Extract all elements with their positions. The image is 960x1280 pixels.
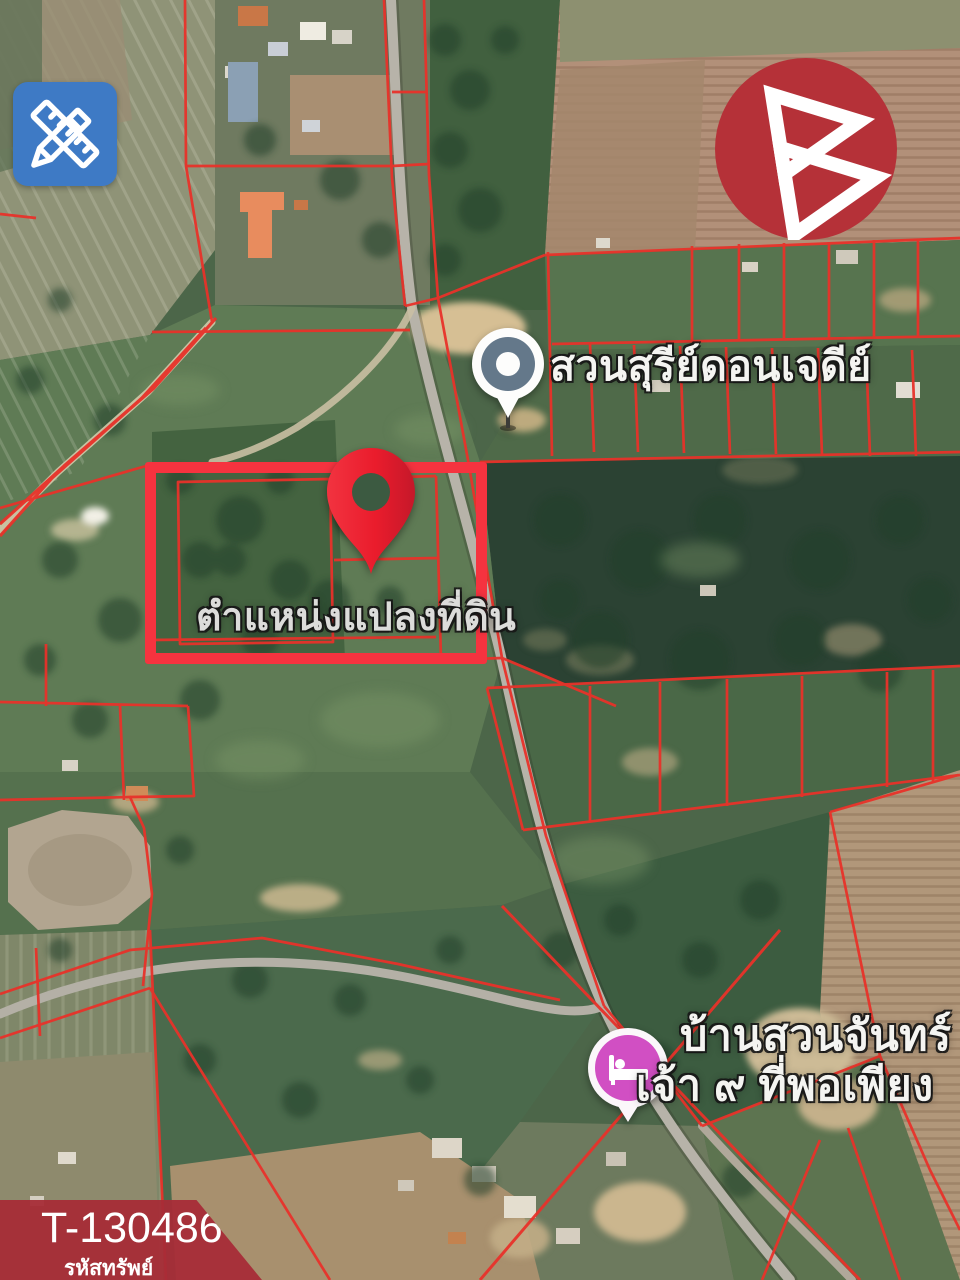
ruler-pencil-icon: [13, 82, 117, 186]
plot-location-label: ตำแหน่งแปลงที่ดิน: [196, 586, 516, 648]
b-triangle-logo-glyph: [715, 58, 897, 240]
garden-poi-pin[interactable]: [462, 318, 554, 433]
brand-logo: [715, 58, 897, 240]
edit-tool-icon[interactable]: [13, 82, 117, 186]
listing-map-image: สวนสุรีย์ดอนเจดีย์ ตำแหน่งแปลงที่ดิน บ้า…: [0, 0, 960, 1280]
lodging-label-line1: บ้านสวนจันทร์: [636, 1012, 952, 1062]
plot-location-pin[interactable]: [325, 446, 417, 580]
property-code: T-130486: [41, 1204, 223, 1253]
lodging-poi-label: บ้านสวนจันทร์ เจ้า ๙ ที่พอเพียง: [636, 1012, 952, 1112]
lodging-label-line2: เจ้า ๙ ที่พอเพียง: [636, 1062, 952, 1112]
property-code-label: รหัสทรัพย์: [64, 1252, 153, 1280]
garden-poi-label: สวนสุรีย์ดอนเจดีย์: [550, 334, 872, 399]
